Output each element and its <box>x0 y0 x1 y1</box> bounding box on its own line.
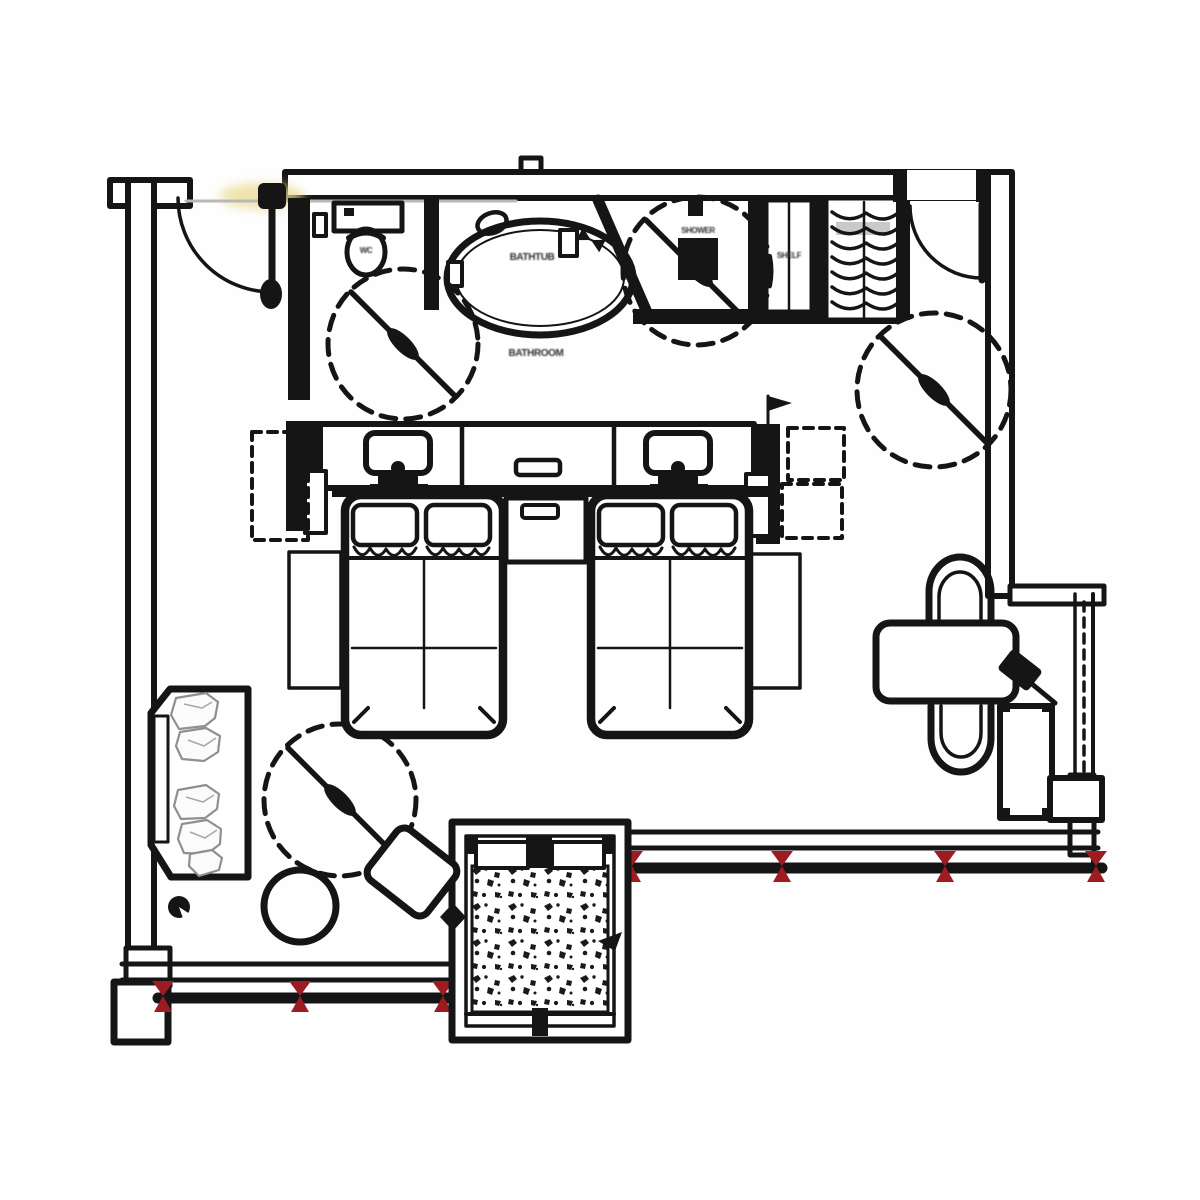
toilet-paper-holder <box>314 214 326 236</box>
shelf-label: SHELF <box>777 251 802 260</box>
bedside-bench-left <box>289 552 341 688</box>
door-stop <box>260 279 282 309</box>
twin-bed-left <box>345 495 503 735</box>
floor-lamp <box>168 896 190 921</box>
toilet-label: WC <box>360 246 373 255</box>
floor-plan-page: WC BATHTUB BATHROOM SHOWER SHELF <box>0 0 1200 1200</box>
bay-window <box>452 822 628 1040</box>
chair-lower <box>931 706 991 772</box>
bathtub-label: BATHTUB <box>510 252 555 263</box>
toilet: WC <box>334 203 402 275</box>
tub-control <box>448 262 462 286</box>
nightstand-handle <box>522 505 558 518</box>
side-cabinet <box>1000 704 1052 818</box>
window-band-right <box>621 832 1107 882</box>
bathtub <box>447 221 633 335</box>
overhead-unit-right-1 <box>788 428 844 480</box>
tub-faucet <box>560 230 577 256</box>
door-swing-arc <box>178 198 272 292</box>
terrazzo-floor <box>472 866 608 1012</box>
twin-bed-right <box>591 495 749 735</box>
entry-door-swing-arc <box>910 206 982 278</box>
console-drawer-handle <box>516 460 560 475</box>
wc-compartment: WC <box>288 198 439 400</box>
shower-label: SHOWER <box>681 226 715 235</box>
floor-plan-drawing: WC BATHTUB BATHROOM SHOWER SHELF <box>0 0 1200 1200</box>
shower-head <box>688 198 703 216</box>
turning-circle-bathroom <box>328 269 478 419</box>
switch-flag <box>768 396 792 411</box>
desk <box>876 623 1016 701</box>
nightstand <box>506 498 586 562</box>
shelf-unit: SHELF <box>766 200 812 312</box>
overhead-unit-right-2 <box>782 484 842 538</box>
wardrobe <box>812 198 910 320</box>
bathroom-label: BATHROOM <box>509 348 564 359</box>
bedside-bench-right <box>748 554 800 688</box>
east-window-wall <box>1050 594 1102 868</box>
bathtub-area: BATHTUB BATHROOM <box>447 208 633 359</box>
chair-upper <box>929 557 991 620</box>
round-side-table <box>264 870 336 942</box>
